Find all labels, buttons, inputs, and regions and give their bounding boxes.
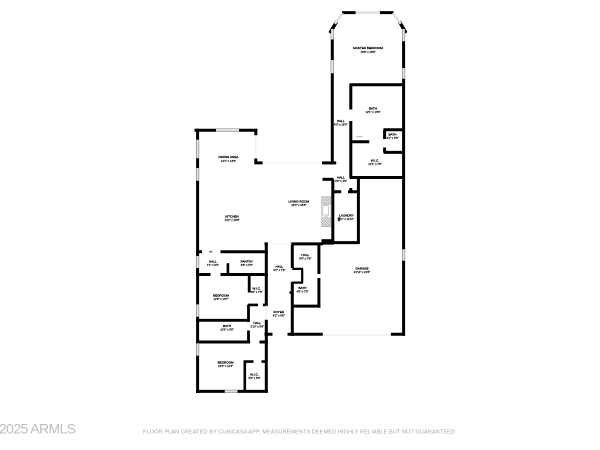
svg-text:HALL: HALL (337, 175, 345, 179)
svg-text:2025 ARMLS: 2025 ARMLS (0, 421, 76, 437)
svg-text:12'1" x 7'8": 12'1" x 7'8" (368, 162, 382, 166)
svg-text:HALL: HALL (301, 253, 309, 257)
svg-text:BATH: BATH (298, 286, 306, 290)
svg-text:5'9" x 5'6": 5'9" x 5'6" (248, 376, 260, 380)
svg-text:4'9" x 7'5": 4'9" x 7'5" (296, 290, 308, 294)
svg-text:12'1" x 13'6": 12'1" x 13'6" (365, 110, 380, 114)
svg-text:PANTRY: PANTRY (241, 260, 253, 264)
svg-text:12'9" x 13'7": 12'9" x 13'7" (213, 297, 228, 301)
svg-text:14'2" x 19'8": 14'2" x 19'8" (224, 218, 239, 222)
svg-text:7'1" x 9'3": 7'1" x 9'3" (207, 263, 219, 267)
svg-text:14'1" x 13'6": 14'1" x 13'6" (221, 159, 236, 163)
svg-text:5'8" x 7'8": 5'8" x 7'8" (299, 257, 311, 261)
svg-text:GARAGE: GARAGE (355, 267, 368, 271)
svg-text:BATH: BATH (369, 107, 377, 111)
svg-text:HALL: HALL (276, 265, 284, 269)
svg-text:8'6" x 5'3": 8'6" x 5'3" (241, 263, 253, 267)
svg-text:16'8" x 18'8": 16'8" x 18'8" (360, 50, 375, 54)
svg-text:DINING AREA: DINING AREA (219, 155, 240, 159)
svg-text:16'2" x 11'3": 16'2" x 11'3" (218, 364, 233, 368)
svg-text:KITCHEN: KITCHEN (225, 215, 239, 219)
svg-text:4'1" x 5'3": 4'1" x 5'3" (386, 136, 398, 140)
svg-text:LAUNDRY: LAUNDRY (339, 214, 354, 218)
svg-text:BATH: BATH (388, 133, 396, 137)
svg-text:3'10" x 5'9": 3'10" x 5'9" (250, 325, 264, 329)
svg-text:16'0" x 18'8": 16'0" x 18'8" (291, 203, 306, 207)
svg-text:6'1" x 11'10": 6'1" x 11'10" (339, 217, 354, 221)
svg-text:4'2" x 9'8": 4'2" x 9'8" (273, 314, 285, 318)
svg-text:4'0" x 4'9": 4'0" x 4'9" (335, 179, 347, 183)
svg-text:FLOOR PLAN CREATED BY CUBICASA: FLOOR PLAN CREATED BY CUBICASA APP. MEAS… (143, 430, 455, 436)
svg-text:FOYER: FOYER (273, 310, 284, 314)
svg-text:6'2" x 7'9": 6'2" x 7'9" (273, 268, 285, 272)
svg-text:HALL: HALL (337, 119, 345, 123)
svg-text:BEDROOM: BEDROOM (213, 294, 229, 298)
svg-text:W.I.C.: W.I.C. (250, 373, 259, 377)
svg-text:4'0" x 19'0": 4'0" x 19'0" (334, 123, 348, 127)
svg-text:3'9" x 7'5": 3'9" x 7'5" (251, 290, 263, 294)
svg-text:W.I.C.: W.I.C. (252, 287, 261, 291)
svg-text:W.I.C.: W.I.C. (371, 159, 380, 163)
svg-text:LIVING ROOM: LIVING ROOM (288, 200, 309, 204)
svg-text:BATH: BATH (223, 324, 231, 328)
svg-text:HALL: HALL (253, 321, 261, 325)
svg-text:MASTER BEDROOM: MASTER BEDROOM (353, 46, 383, 50)
svg-text:12'6" x 5'6": 12'6" x 5'6" (220, 328, 234, 332)
svg-text:24'11" x 21'8": 24'11" x 21'8" (354, 270, 370, 274)
svg-text:BEDROOM: BEDROOM (218, 361, 234, 365)
svg-text:HALL: HALL (209, 260, 217, 264)
